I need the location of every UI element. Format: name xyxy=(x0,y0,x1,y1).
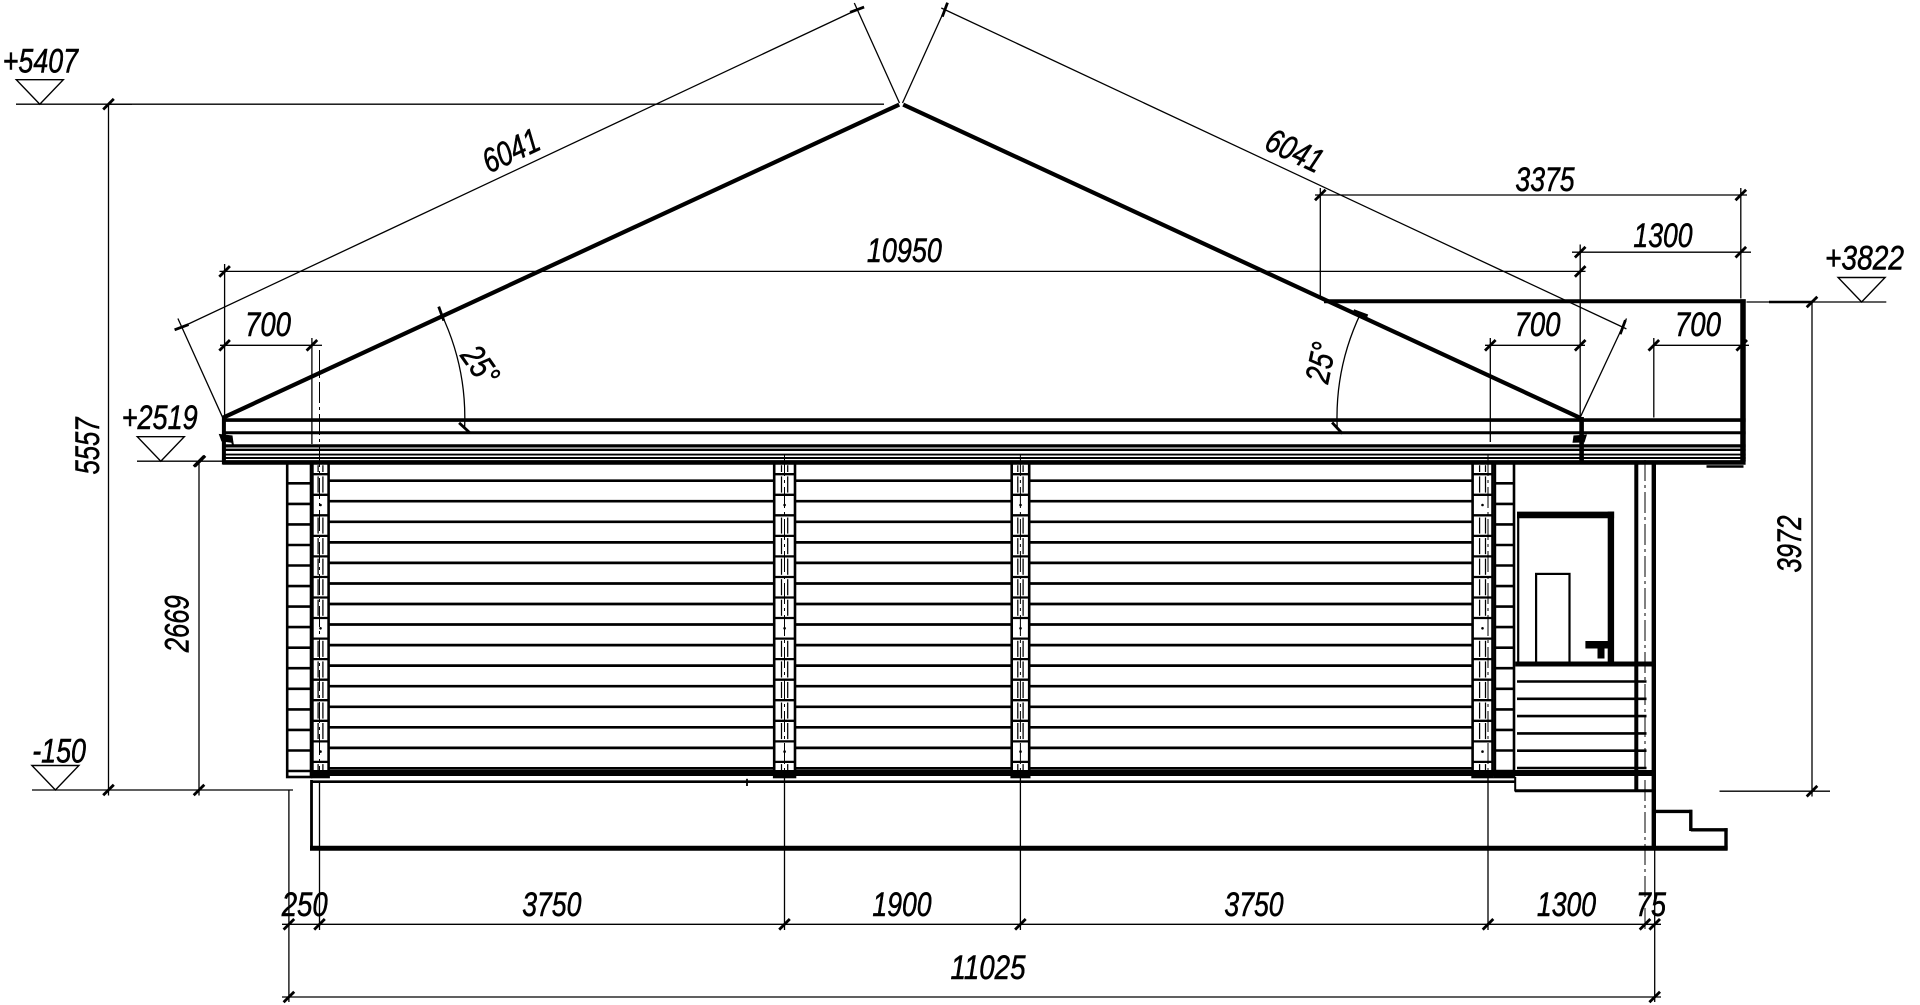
svg-text:+2519: +2519 xyxy=(122,399,198,437)
svg-text:2669: 2669 xyxy=(159,595,197,653)
svg-text:3375: 3375 xyxy=(1515,161,1574,199)
svg-text:11025: 11025 xyxy=(951,949,1026,987)
svg-text:1900: 1900 xyxy=(872,886,931,924)
svg-text:700: 700 xyxy=(1675,306,1721,344)
svg-text:700: 700 xyxy=(1515,306,1561,344)
svg-text:10950: 10950 xyxy=(867,232,942,270)
svg-text:700: 700 xyxy=(245,306,291,344)
svg-text:3750: 3750 xyxy=(1224,886,1283,924)
svg-text:+5407: +5407 xyxy=(3,42,79,80)
svg-text:+3822: +3822 xyxy=(1825,239,1904,277)
svg-text:3750: 3750 xyxy=(522,886,581,924)
svg-text:75: 75 xyxy=(1636,886,1666,924)
svg-text:5557: 5557 xyxy=(69,417,107,475)
svg-text:250: 250 xyxy=(281,886,328,924)
svg-text:3972: 3972 xyxy=(1771,515,1809,572)
svg-text:1300: 1300 xyxy=(1537,886,1596,924)
svg-text:1300: 1300 xyxy=(1633,217,1692,255)
